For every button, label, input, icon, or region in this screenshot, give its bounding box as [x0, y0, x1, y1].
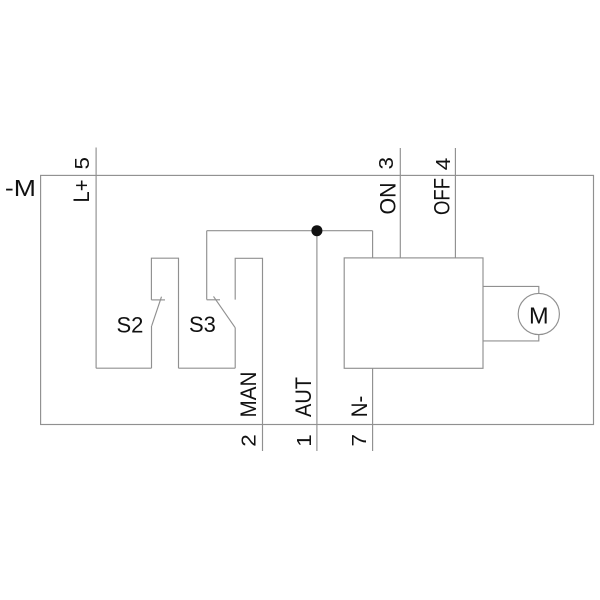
svg-text:7: 7 — [348, 434, 371, 447]
svg-text:AUT: AUT — [291, 377, 316, 417]
svg-text:3: 3 — [375, 157, 398, 170]
svg-text:-M: -M — [5, 175, 36, 201]
svg-text:2: 2 — [238, 434, 261, 447]
svg-text:S3: S3 — [189, 312, 216, 337]
svg-text:5: 5 — [71, 157, 94, 170]
svg-text:S2: S2 — [117, 313, 144, 338]
svg-text:M: M — [529, 302, 549, 328]
svg-text:1: 1 — [293, 434, 316, 447]
svg-text:N-: N- — [347, 396, 372, 418]
svg-text:L+: L+ — [69, 180, 94, 203]
svg-text:ON: ON — [376, 183, 401, 215]
svg-text:MAN: MAN — [236, 372, 261, 418]
svg-text:OFF: OFF — [430, 178, 455, 215]
svg-text:4: 4 — [432, 158, 455, 171]
